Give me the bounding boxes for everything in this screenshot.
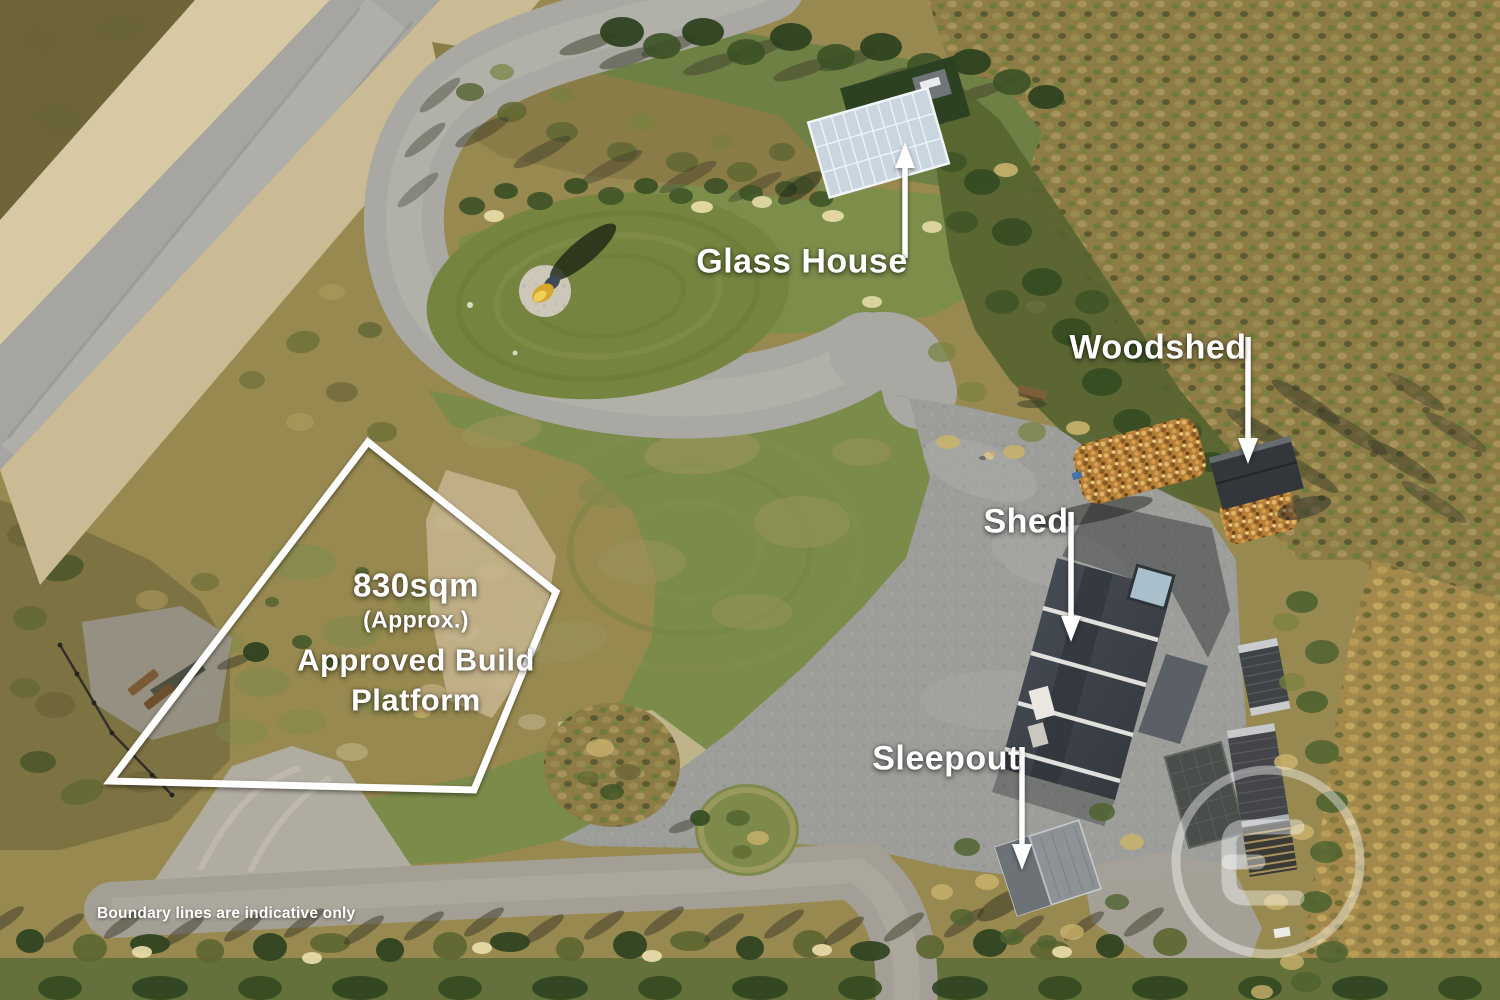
shrub-island	[544, 703, 680, 827]
disclaimer-text: Boundary lines are indicative only	[97, 905, 355, 923]
aerial-scene	[0, 0, 1500, 1000]
aerial-photo: Glass House Woodshed Shed Sleepout 830sq…	[0, 0, 1500, 1000]
shed-label: Shed	[983, 503, 1068, 542]
platform-line2: Platform	[297, 685, 535, 716]
platform-line1: Approved Build	[297, 645, 535, 676]
driveway-neck	[866, 349, 920, 392]
platform-area: 830sqm	[297, 569, 535, 602]
lawn-stone	[513, 351, 518, 356]
sleepout-label: Sleepout	[872, 740, 1020, 779]
woodshed-label: Woodshed	[1069, 329, 1246, 368]
lawn-stone	[467, 302, 473, 308]
platform-approx: (Approx.)	[297, 609, 535, 632]
glass-house-label: Glass House	[696, 243, 907, 282]
build-platform-label: 830sqm (Approx.) Approved Build Platform	[297, 569, 535, 716]
shrub-island	[695, 784, 799, 876]
